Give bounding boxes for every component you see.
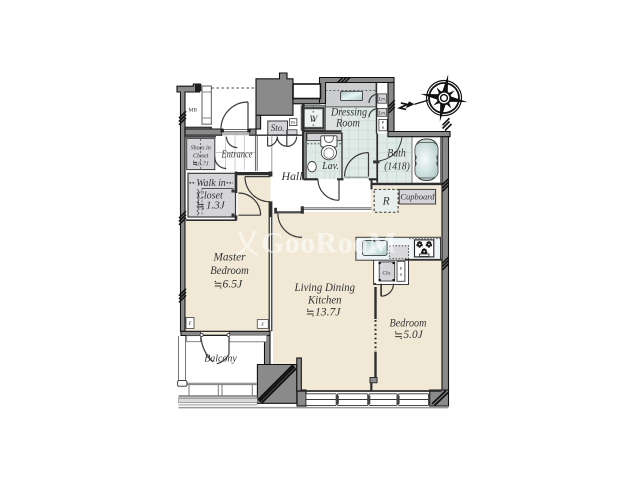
svg-text:Entrance: Entrance — [221, 149, 253, 160]
svg-text:1.3J: 1.3J — [206, 200, 226, 212]
svg-text:MB: MB — [189, 108, 198, 114]
svg-text:Cupboard: Cupboard — [400, 192, 435, 202]
svg-text:GooRooM: GooRooM — [261, 227, 397, 260]
svg-text:......: ...... — [272, 130, 284, 135]
svg-text:Clo.: Clo. — [382, 271, 391, 277]
svg-text:Balcony: Balcony — [204, 354, 237, 365]
svg-text:6.5J: 6.5J — [223, 278, 243, 291]
svg-text:PS: PS — [291, 120, 296, 125]
svg-text:Walk in: Walk in — [196, 177, 226, 189]
svg-text:0.7J: 0.7J — [198, 162, 209, 168]
svg-text:Lm.: Lm. — [377, 98, 386, 103]
svg-text:Shoes in: Shoes in — [191, 146, 211, 152]
svg-text:Living Dining: Living Dining — [294, 281, 356, 294]
svg-text:Bath: Bath — [387, 148, 406, 160]
svg-text:Closet: Closet — [193, 154, 209, 160]
svg-text:Bedroom: Bedroom — [210, 264, 249, 277]
svg-text:Dressing: Dressing — [330, 107, 367, 119]
svg-text:Hall: Hall — [281, 169, 304, 183]
svg-text:13.7J: 13.7J — [315, 306, 341, 319]
svg-text:Lav.: Lav. — [321, 161, 339, 172]
svg-text:5.0J: 5.0J — [404, 329, 424, 341]
svg-text:(1418): (1418) — [384, 161, 410, 173]
svg-text:W: W — [309, 115, 318, 125]
svg-text:R: R — [382, 196, 390, 208]
svg-text:Room: Room — [335, 118, 360, 130]
svg-text:Lm.: Lm. — [377, 112, 386, 117]
svg-text:Bedroom: Bedroom — [390, 318, 427, 330]
